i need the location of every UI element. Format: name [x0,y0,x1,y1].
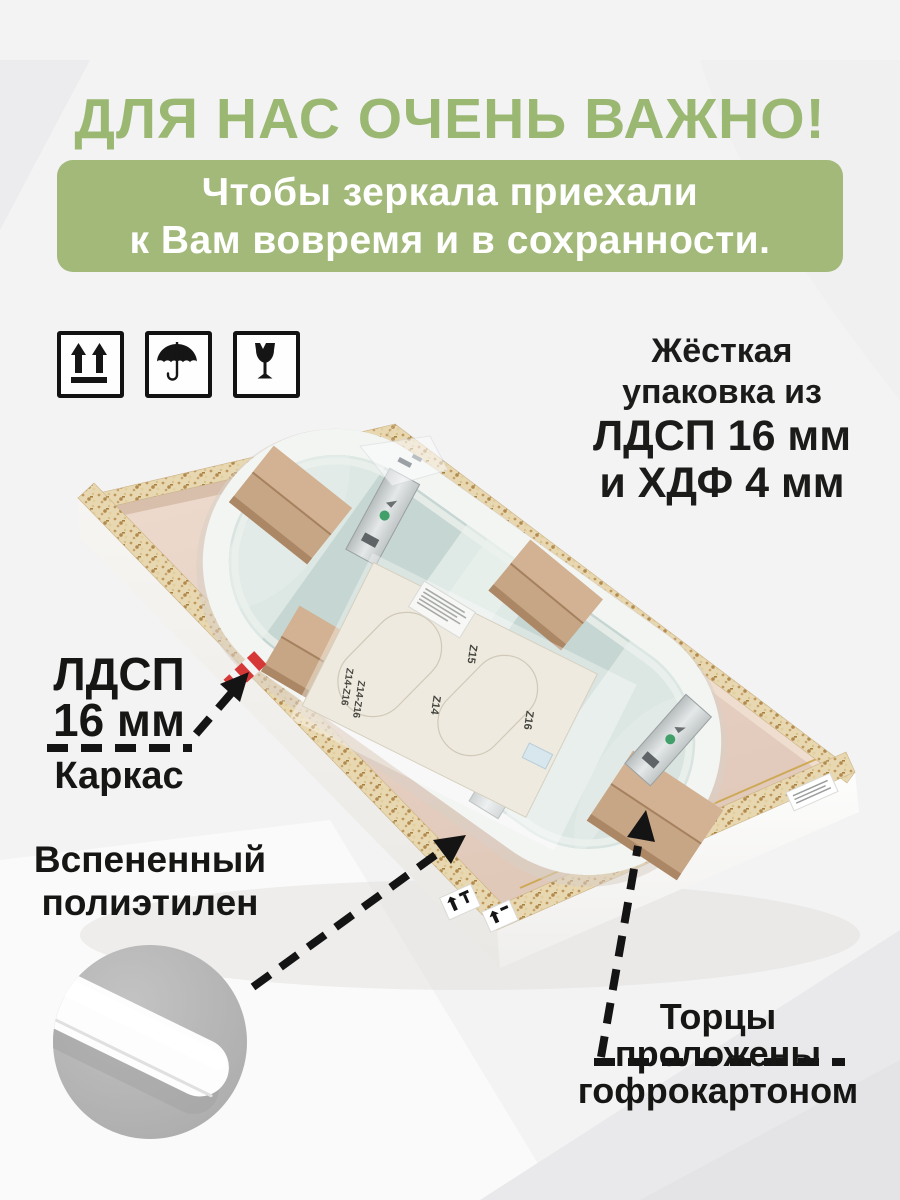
page-title: ДЛЯ НАС ОЧЕНЬ ВАЖНО! [0,86,900,152]
edges-callout: Торцы проложены гофрокартоном [565,998,871,1109]
packaging-note-line: ЛДСП 16 мм [572,413,872,460]
up-arrows-glyph [65,339,113,387]
foam-callout-line: Вспененный [15,838,285,881]
keep-dry-icon [145,331,212,398]
packaging-note-line: упаковка из [572,372,872,413]
packaging-note: Жёсткая упаковка из ЛДСП 16 мм и ХДФ 4 м… [572,331,872,507]
packaging-note-line: Жёсткая [572,331,872,372]
foam-callout: Вспененный полиэтилен [15,838,285,924]
banner-line-1: Чтобы зеркала приехали [57,169,843,217]
product-infographic: Z15 Z16 Z14 Z14-Z16 Z14-Z16 [0,0,900,1200]
fragile-icon [233,331,300,398]
foam-callout-line: полиэтилен [15,881,285,924]
frame-thickness: 16 мм [23,698,215,742]
edges-callout-line: Торцы [565,998,871,1035]
banner-line-2: к Вам вовремя и в сохранности. [57,217,843,265]
edges-callout-line: проложены [565,1035,871,1072]
subtitle-banner: Чтобы зеркала приехали к Вам вовремя и в… [57,160,843,272]
broken-glass-glyph [241,339,289,387]
frame-material: ЛДСП [23,651,215,698]
this-way-up-icon [57,331,124,398]
packaging-note-line: и ХДФ 4 мм [572,460,872,507]
edges-callout-line: гофрокартоном [565,1072,871,1109]
frame-label: Каркас [23,756,215,796]
frame-callout: ЛДСП 16 мм Каркас [23,651,215,796]
umbrella-glyph [153,339,201,387]
